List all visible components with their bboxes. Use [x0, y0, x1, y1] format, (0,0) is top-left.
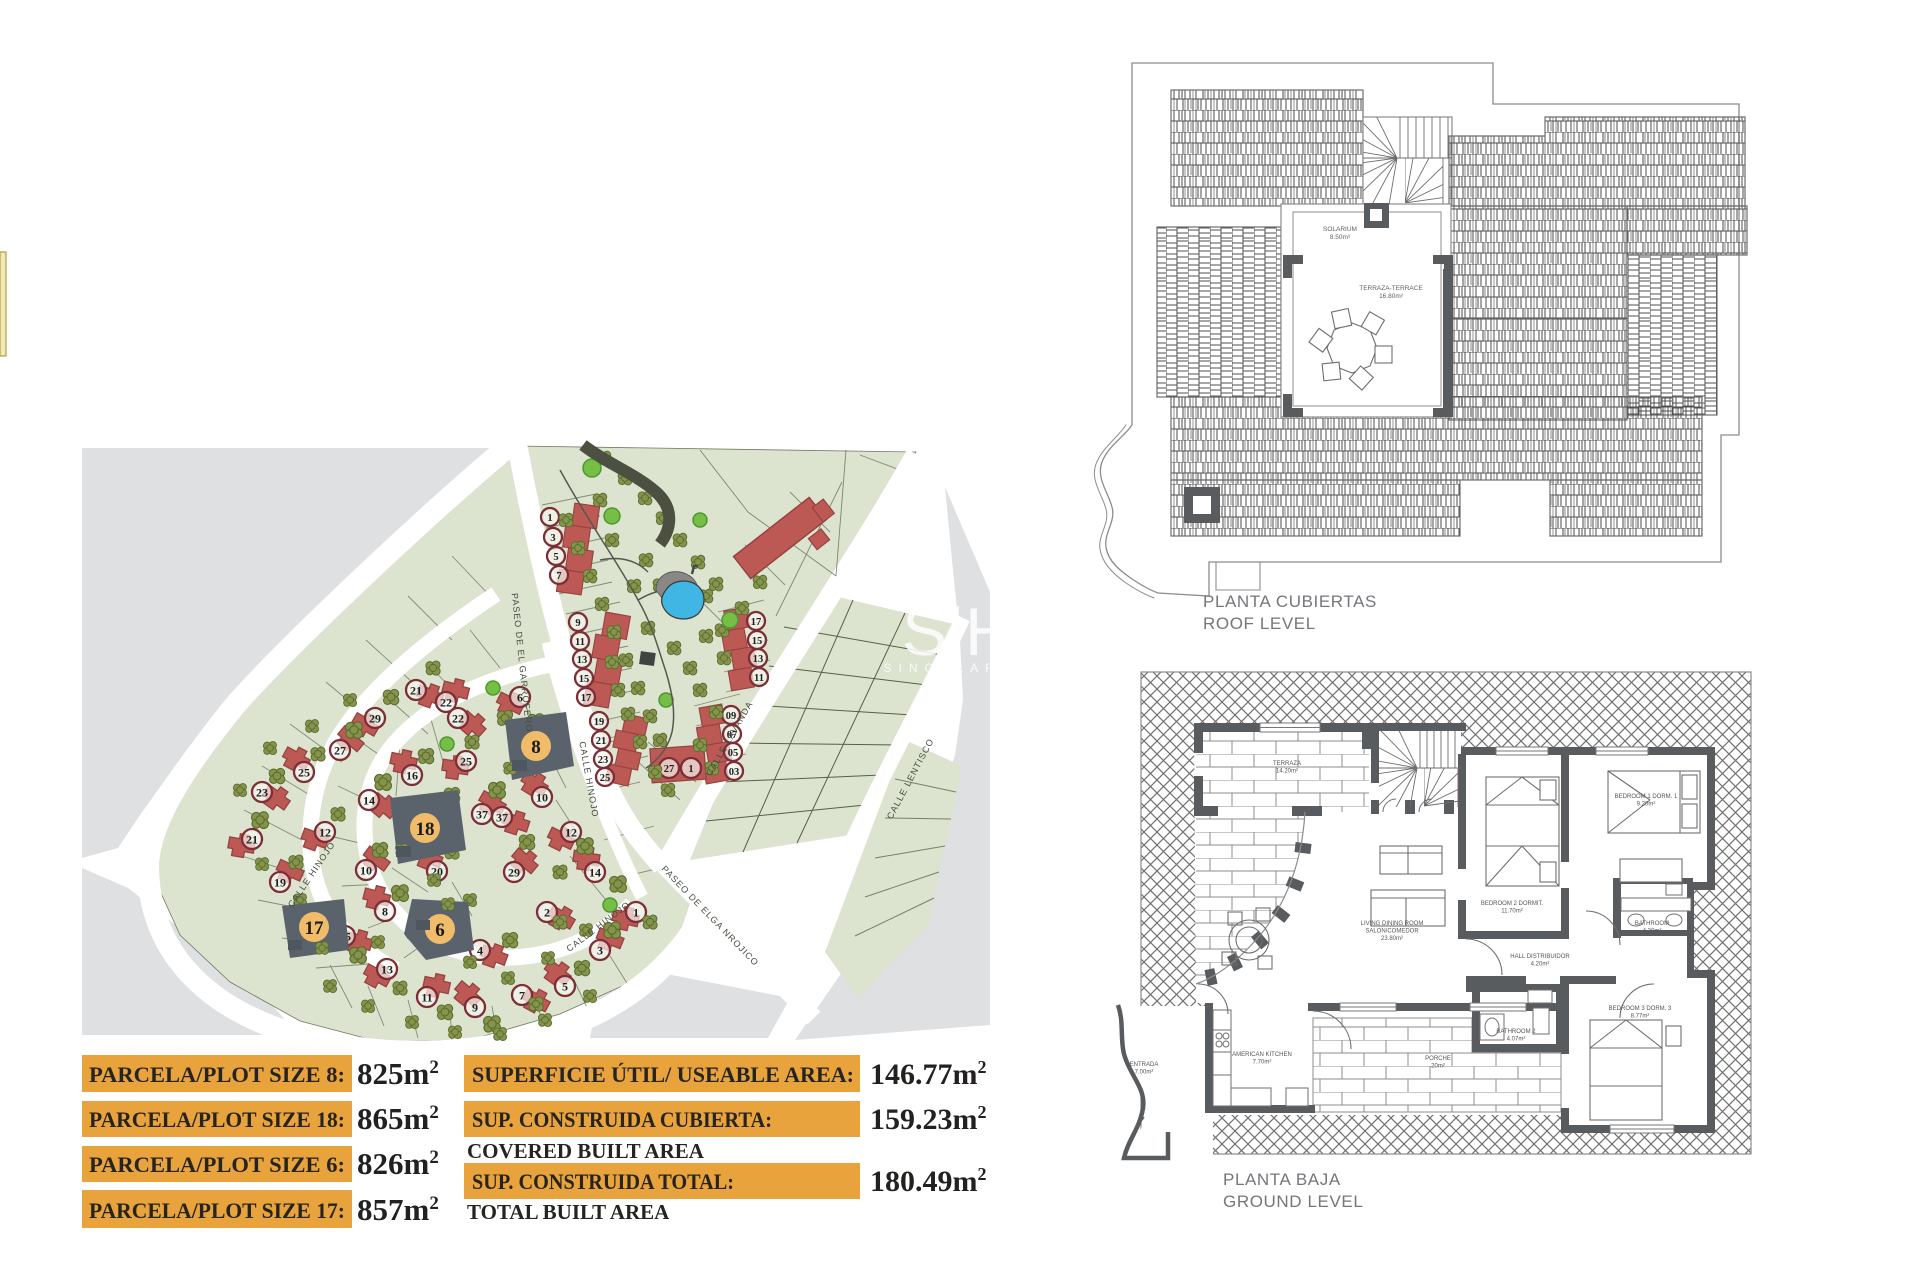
- svg-text:10: 10: [536, 790, 548, 804]
- svg-text:17: 17: [305, 918, 325, 939]
- svg-text:6: 6: [435, 920, 445, 941]
- svg-text:21: 21: [410, 683, 422, 697]
- svg-text:18: 18: [416, 819, 435, 840]
- svg-text:BEDROOM 1 DORM. 1: BEDROOM 1 DORM. 1: [1615, 794, 1678, 800]
- svg-text:12: 12: [565, 825, 577, 839]
- svg-text:146.77m2: 146.77m2: [870, 1057, 987, 1091]
- svg-text:13: 13: [381, 962, 393, 976]
- svg-text:03: 03: [729, 767, 740, 778]
- svg-text:3: 3: [550, 533, 555, 544]
- svg-text:S|H: S|H: [902, 594, 1014, 670]
- svg-text:BATHROOM: BATHROOM: [1635, 921, 1669, 927]
- svg-text:ENTRADA: ENTRADA: [1130, 1062, 1159, 1068]
- svg-text:7.70m²: 7.70m²: [1253, 1060, 1272, 1066]
- svg-text:1: 1: [547, 513, 552, 524]
- svg-text:21: 21: [246, 832, 258, 846]
- svg-text:11: 11: [421, 990, 432, 1004]
- svg-text:9: 9: [575, 618, 580, 629]
- svg-text:15: 15: [579, 674, 590, 685]
- svg-text:10: 10: [360, 863, 372, 877]
- svg-text:BATHROOM 2: BATHROOM 2: [1496, 1029, 1536, 1035]
- svg-text:11.70m²: 11.70m²: [1501, 909, 1523, 915]
- svg-text:27: 27: [334, 743, 346, 757]
- svg-text:23.80m²: 23.80m²: [1381, 936, 1403, 942]
- svg-text:180.49m2: 180.49m2: [870, 1164, 987, 1198]
- svg-text:PORCHE: PORCHE: [1425, 1056, 1451, 1062]
- svg-text:9.20m²: 9.20m²: [1637, 802, 1656, 808]
- svg-text:17: 17: [751, 617, 762, 628]
- svg-text:14: 14: [363, 793, 375, 807]
- svg-text:8.50m²: 8.50m²: [1330, 234, 1351, 241]
- svg-text:SUP. CONSTRUIDA CUBIERTA:: SUP. CONSTRUIDA CUBIERTA:: [472, 1107, 772, 1132]
- svg-text:HALL DISTRIBUIDOR: HALL DISTRIBUIDOR: [1510, 954, 1570, 960]
- svg-text:BEDROOM 2 DORMIT.: BEDROOM 2 DORMIT.: [1481, 901, 1544, 907]
- svg-text:825m2: 825m2: [357, 1056, 439, 1091]
- svg-text:COVERED BUILT AREA: COVERED BUILT AREA: [467, 1139, 705, 1163]
- svg-text:2: 2: [544, 905, 550, 919]
- svg-text:5: 5: [553, 552, 558, 563]
- svg-text:SUPERFICIE ÚTIL/ USEABLE AREA:: SUPERFICIE ÚTIL/ USEABLE AREA:: [472, 1062, 854, 1087]
- svg-text:GROUND LEVEL: GROUND LEVEL: [1223, 1192, 1363, 1211]
- svg-text:826m2: 826m2: [357, 1146, 439, 1181]
- svg-text:21: 21: [596, 736, 607, 747]
- svg-text:22: 22: [452, 711, 464, 725]
- svg-text:9: 9: [472, 1000, 478, 1014]
- svg-text:1: 1: [688, 764, 693, 775]
- svg-text:25: 25: [600, 773, 611, 784]
- svg-text:25: 25: [298, 765, 310, 779]
- svg-text:7.00m²: 7.00m²: [1135, 1070, 1154, 1076]
- svg-text:19: 19: [274, 875, 286, 889]
- svg-text:8: 8: [531, 737, 541, 758]
- svg-text:16: 16: [406, 768, 418, 782]
- svg-text:4.30m²: 4.30m²: [1643, 929, 1662, 935]
- svg-text:4.20m²: 4.20m²: [1531, 962, 1550, 968]
- svg-text:PLANTA BAJA: PLANTA BAJA: [1223, 1170, 1341, 1189]
- svg-text:SUP. CONSTRUIDA TOTAL:: SUP. CONSTRUIDA TOTAL:: [472, 1169, 734, 1194]
- svg-text:4.07m²: 4.07m²: [1507, 1037, 1526, 1043]
- svg-text:SOLARIUM: SOLARIUM: [1323, 226, 1357, 233]
- svg-text:1: 1: [633, 905, 639, 919]
- svg-text:TERRAZA: TERRAZA: [1273, 761, 1301, 767]
- svg-text:8.77m²: 8.77m²: [1631, 1014, 1650, 1020]
- svg-text:23: 23: [598, 755, 609, 766]
- svg-text:15: 15: [752, 636, 763, 647]
- svg-text:PARCELA/PLOT SIZE 18:: PARCELA/PLOT SIZE 18:: [89, 1107, 345, 1132]
- svg-text:16.80m²: 16.80m²: [1379, 293, 1404, 300]
- svg-text:BEDROOM 3 DORM. 3: BEDROOM 3 DORM. 3: [1609, 1006, 1672, 1012]
- svg-text:PARCELA/PLOT SIZE 6:: PARCELA/PLOT SIZE 6:: [89, 1152, 345, 1177]
- svg-text:19: 19: [594, 717, 605, 728]
- svg-text:865m2: 865m2: [357, 1101, 439, 1136]
- svg-text:27: 27: [664, 764, 675, 775]
- svg-text:20m²: 20m²: [1431, 1064, 1445, 1070]
- svg-text:SALON/COMEDOR: SALON/COMEDOR: [1365, 929, 1419, 935]
- svg-text:29: 29: [369, 711, 381, 725]
- svg-text:29: 29: [508, 865, 520, 879]
- svg-text:7: 7: [519, 988, 525, 1002]
- svg-text:LIVING DINING ROOM: LIVING DINING ROOM: [1361, 921, 1424, 927]
- svg-text:SINGULARITY: SINGULARITY: [883, 661, 1040, 675]
- svg-text:857m2: 857m2: [357, 1192, 439, 1227]
- svg-text:05: 05: [728, 748, 739, 759]
- svg-text:14: 14: [589, 865, 601, 879]
- svg-text:ROOF LEVEL: ROOF LEVEL: [1203, 614, 1316, 633]
- svg-text:7: 7: [556, 571, 561, 582]
- svg-text:22: 22: [440, 695, 452, 709]
- svg-text:17: 17: [581, 693, 592, 704]
- svg-text:5: 5: [562, 979, 568, 993]
- svg-text:11: 11: [754, 673, 764, 684]
- svg-text:TOTAL BUILT AREA: TOTAL BUILT AREA: [467, 1200, 670, 1224]
- svg-text:PARCELA/PLOT SIZE 8:: PARCELA/PLOT SIZE 8:: [89, 1062, 345, 1087]
- svg-text:14.20m²: 14.20m²: [1276, 769, 1298, 775]
- svg-text:3: 3: [597, 943, 603, 957]
- svg-text:TERRAZA-TERRACE: TERRAZA-TERRACE: [1359, 285, 1423, 292]
- svg-text:8: 8: [382, 904, 388, 918]
- svg-text:PLANTA CUBIERTAS: PLANTA CUBIERTAS: [1203, 592, 1377, 611]
- svg-text:13: 13: [577, 655, 588, 666]
- svg-text:37: 37: [496, 810, 508, 824]
- svg-text:12: 12: [319, 825, 331, 839]
- svg-text:AMERICAN KITCHEN: AMERICAN KITCHEN: [1232, 1052, 1292, 1058]
- svg-text:23: 23: [256, 785, 268, 799]
- svg-text:PARCELA/PLOT SIZE 17:: PARCELA/PLOT SIZE 17:: [89, 1198, 345, 1223]
- svg-text:25: 25: [460, 754, 472, 768]
- svg-text:11: 11: [575, 637, 585, 648]
- svg-text:37: 37: [476, 807, 488, 821]
- svg-text:4: 4: [477, 943, 483, 957]
- svg-text:159.23m2: 159.23m2: [870, 1102, 987, 1136]
- svg-text:13: 13: [753, 654, 764, 665]
